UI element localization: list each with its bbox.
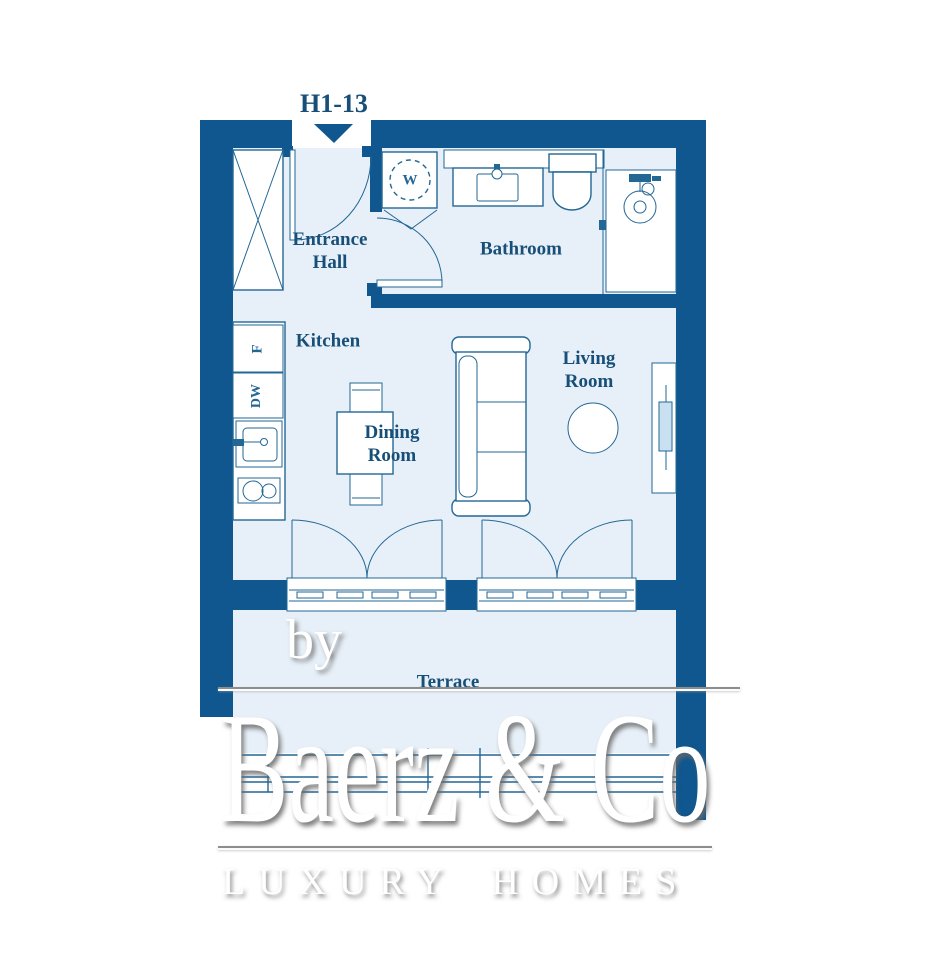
watermark-rule-bottom <box>218 846 712 850</box>
dining-room-line1: Dining <box>365 422 420 443</box>
entrance-hall-label: Entrance Hall <box>293 228 368 274</box>
living-room-line1: Living <box>563 348 616 369</box>
washer-label: W <box>403 173 418 190</box>
dishwasher-label: DW <box>249 384 265 408</box>
watermark-tagline: LUXURY HOMES <box>222 860 689 904</box>
entrance-hall-line2: Hall <box>293 251 368 274</box>
coffee-table <box>568 403 618 453</box>
kitchen-label: Kitchen <box>296 330 360 353</box>
dining-room-line2: Room <box>365 444 420 467</box>
toilet <box>549 154 596 210</box>
unit-label: H1-13 <box>300 89 368 119</box>
living-room-label: Living Room <box>563 347 616 393</box>
tv-unit <box>652 363 676 493</box>
hall-closet <box>233 150 283 290</box>
living-room-line2: Room <box>563 370 616 393</box>
bathroom-label: Bathroom <box>480 238 562 261</box>
dining-room-label: Dining Room <box>365 421 420 467</box>
entrance-arrow-icon <box>314 124 353 143</box>
entrance-hall-line1: Entrance <box>293 229 368 250</box>
watermark-by: by <box>286 608 342 672</box>
shower <box>599 150 676 294</box>
floor-plan-page: H1-13 Entrance Hall Bathroom Kitchen Din… <box>0 0 933 979</box>
fridge-label: F <box>250 344 267 353</box>
sofa <box>452 337 530 516</box>
watermark-brand: Baerz & Co <box>220 690 711 848</box>
